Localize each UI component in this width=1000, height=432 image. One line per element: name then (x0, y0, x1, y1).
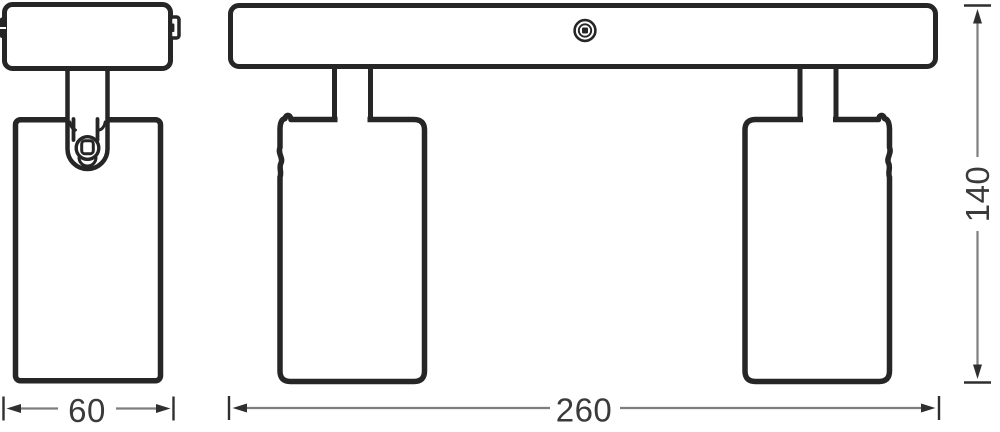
dimension-spot-width: 60 (4, 392, 174, 429)
dimension-height: 140 (959, 6, 996, 383)
dim60-right-arrow (156, 404, 171, 413)
dimension-bar-width: 260 (229, 392, 939, 429)
side-view (0, 5, 179, 381)
front-left-stem-opening (338, 73, 368, 125)
dim260-right-arrow (921, 404, 936, 413)
dim260-label: 260 (556, 392, 613, 429)
dim140-top-arrow (973, 9, 982, 24)
canopy-right-tab-slot (171, 24, 174, 33)
front-left-spot-head (279, 115, 424, 381)
dimension-drawing: 60 260 140 (0, 0, 1000, 432)
dim260-left-arrow (233, 404, 248, 413)
screw-center (582, 28, 588, 34)
dim60-label: 60 (68, 392, 106, 429)
drawing-svg: 60 260 140 (0, 0, 1000, 432)
pivot-screw-slot (82, 141, 94, 154)
front-right-stem-opening (803, 73, 833, 125)
dim140-bottom-arrow (973, 365, 982, 380)
side-canopy (5, 5, 171, 69)
dim60-left-arrow (7, 404, 22, 413)
front-right-spot-head (745, 115, 890, 381)
dim140-label: 140 (959, 166, 996, 223)
front-view (231, 6, 936, 382)
